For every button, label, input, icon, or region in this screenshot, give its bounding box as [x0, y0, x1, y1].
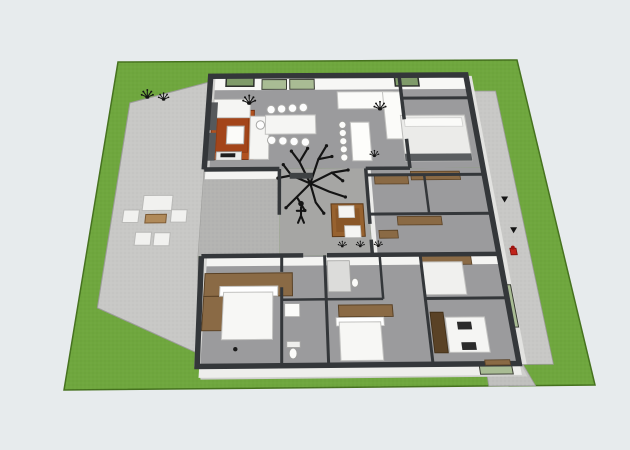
lounge-chair-front-1	[134, 232, 152, 245]
bar-stool	[339, 129, 346, 136]
bar-stool	[339, 121, 346, 128]
courtyard-chair-1	[338, 206, 354, 218]
bed-2	[339, 322, 384, 361]
courtyard-chair-2	[345, 226, 362, 238]
wardrobe-master-side	[202, 296, 224, 331]
wardrobe-hall-3	[397, 216, 442, 225]
office-chair-1	[457, 322, 472, 330]
floor-plan-render	[0, 0, 630, 450]
coffee-table	[226, 126, 244, 144]
wall-office-north	[425, 298, 507, 299]
dining-chair	[268, 136, 276, 144]
bar-stool	[340, 146, 347, 153]
bed-4	[421, 262, 467, 295]
toilet-master	[289, 348, 297, 359]
lounge-sofa	[142, 195, 173, 210]
bed-guest-footboard	[405, 153, 473, 161]
wall-living-south	[204, 169, 279, 170]
dining-chair	[301, 138, 309, 146]
office-chair-2	[461, 342, 477, 350]
wall-wing-west-lower	[371, 240, 372, 255]
lounge-chair-left	[122, 210, 139, 223]
bed-guest-pillows	[404, 118, 463, 127]
dining-chair	[279, 137, 287, 145]
wall-bottomwing-north-left	[201, 255, 303, 256]
floor-plan-svg	[0, 0, 630, 450]
lounge-chair-front-2	[153, 233, 170, 246]
lounge-chair-right	[170, 210, 187, 223]
lounge-table	[145, 214, 167, 223]
dining-chair	[267, 105, 275, 113]
slippers	[233, 347, 237, 351]
wardrobe-bed2	[338, 305, 393, 317]
dining-chair	[299, 103, 307, 111]
bar-stool	[340, 138, 347, 145]
toilet-tank	[287, 341, 300, 347]
dresser-hall	[379, 230, 399, 238]
dining-table	[265, 115, 316, 134]
window-south-office	[479, 366, 513, 375]
dining-chair	[288, 104, 296, 112]
sofa-main	[213, 99, 251, 118]
sideboard-dark	[290, 173, 313, 179]
hydrant-cap	[511, 246, 515, 250]
sink-master	[285, 304, 300, 317]
bed-master	[221, 292, 272, 340]
bar-stool	[341, 154, 348, 161]
tv-screen	[220, 153, 235, 157]
window-north-1	[262, 80, 287, 90]
dining-chair	[256, 121, 264, 129]
window-north-2	[290, 79, 315, 89]
skylight-north-1	[226, 78, 254, 87]
terrace-courtyard-texture	[198, 169, 279, 256]
wardrobe-hall-1	[374, 175, 408, 184]
toilet-ensuite	[352, 278, 359, 287]
dining-chair	[277, 105, 285, 113]
shower-ensuite	[327, 261, 351, 292]
front-door	[485, 360, 511, 366]
kitchen-island	[350, 122, 372, 161]
wall-bottomwing-north-right	[327, 254, 499, 255]
dining-chair	[290, 137, 298, 145]
